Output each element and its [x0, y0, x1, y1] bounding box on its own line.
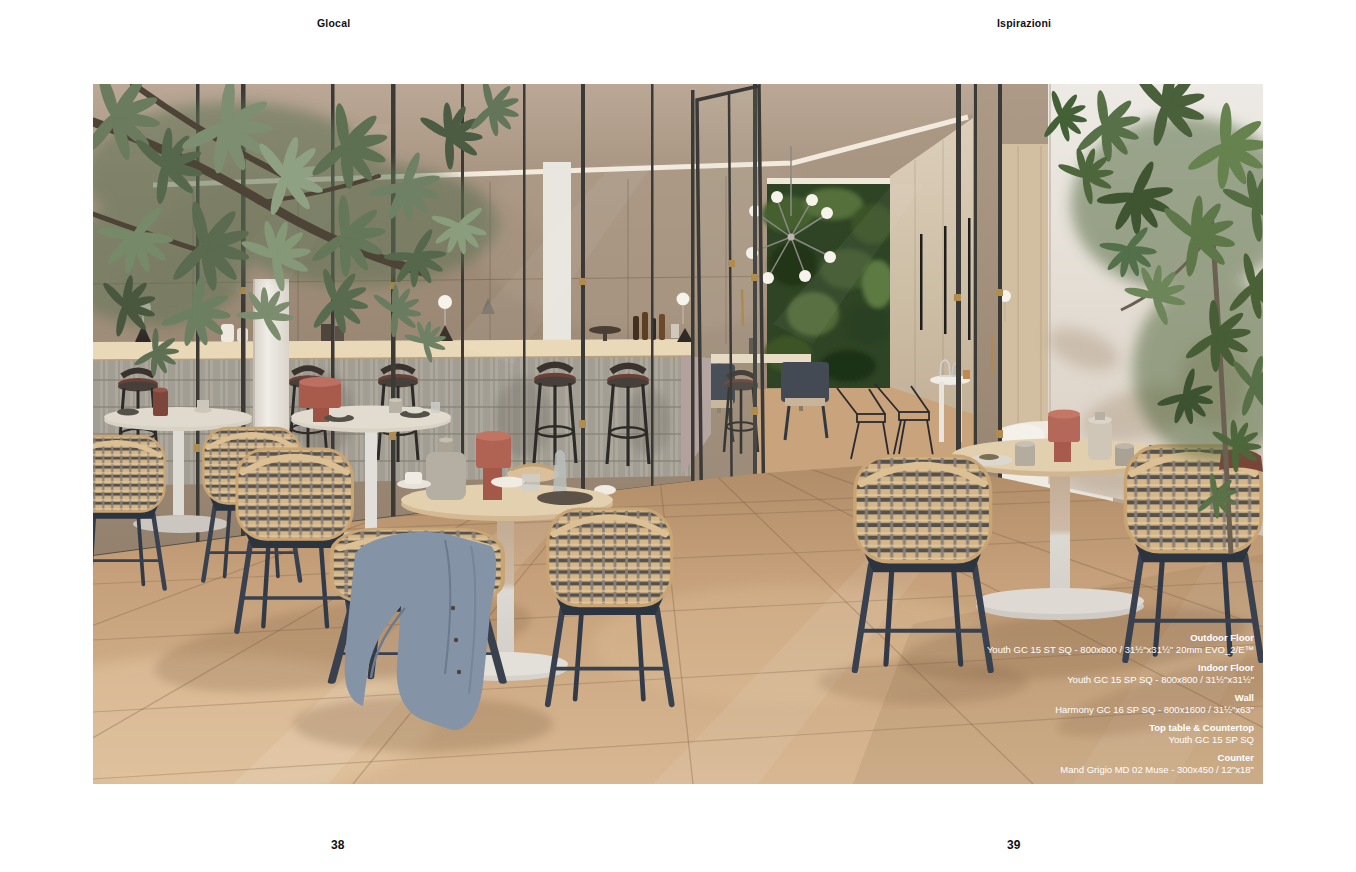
spec-outdoor-floor: Outdoor Floor Youth GC 15 ST SQ - 800x80…: [824, 632, 1254, 655]
spec-value: Mand Grigio MD 02 Muse - 300x450 / 12"x1…: [824, 764, 1254, 776]
spec-label: Outdoor Floor: [824, 632, 1254, 644]
spec-label: Top table & Countertop: [824, 722, 1254, 734]
spec-value: Youth GC 15 SP SQ - 800x800 / 31½"x31½": [824, 674, 1254, 686]
spec-value: Harmony GC 16 SP SQ - 800x1600 / 31½"x63…: [824, 704, 1254, 716]
spec-value: Youth GC 15 SP SQ: [824, 734, 1254, 746]
lifestyle-photo: Outdoor Floor Youth GC 15 ST SQ - 800x80…: [93, 84, 1263, 784]
header-collection: Glocal: [317, 17, 350, 29]
spec-top-table-countertop: Top table & Countertop Youth GC 15 SP SQ: [824, 722, 1254, 745]
page-number-left: 38: [331, 838, 344, 852]
spec-value: Youth GC 15 ST SQ - 800x800 / 31½"x31½" …: [824, 644, 1254, 656]
spec-indoor-floor: Indoor Floor Youth GC 15 SP SQ - 800x800…: [824, 662, 1254, 685]
page-number-right: 39: [1007, 838, 1020, 852]
spec-counter: Counter Mand Grigio MD 02 Muse - 300x450…: [824, 752, 1254, 775]
spec-wall: Wall Harmony GC 16 SP SQ - 800x1600 / 31…: [824, 692, 1254, 715]
spec-label: Counter: [824, 752, 1254, 764]
spec-label: Indoor Floor: [824, 662, 1254, 674]
spec-label: Wall: [824, 692, 1254, 704]
catalog-spread: Glocal Ispirazioni: [0, 0, 1356, 872]
header-section: Ispirazioni: [997, 17, 1051, 29]
product-specs: Outdoor Floor Youth GC 15 ST SQ - 800x80…: [824, 625, 1254, 775]
